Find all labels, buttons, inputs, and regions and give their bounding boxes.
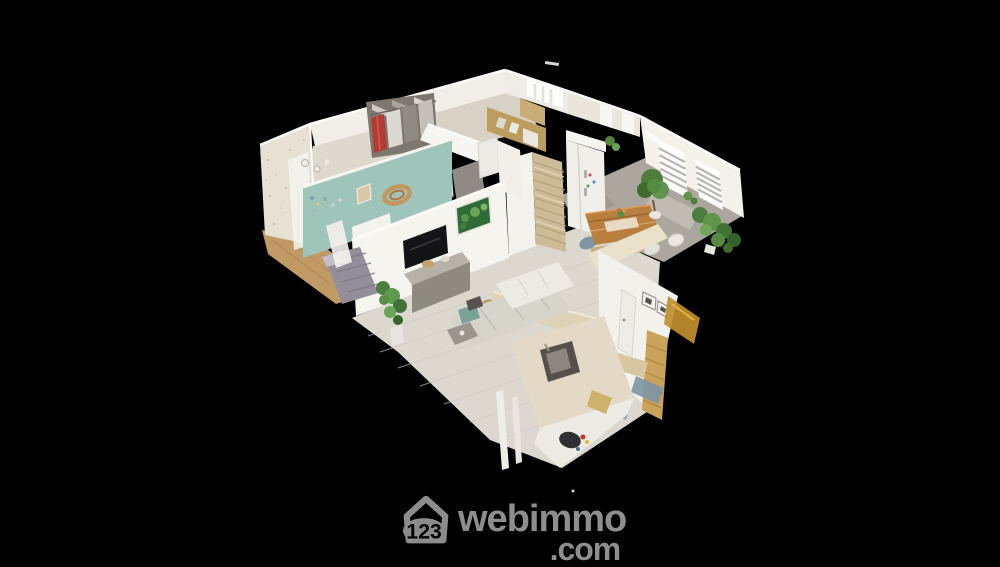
tour-viewer-stage: 123 webimmo .com bbox=[0, 0, 1000, 563]
plant-near-hall bbox=[605, 136, 620, 151]
stone-column bbox=[532, 152, 566, 252]
kitchen-island bbox=[496, 316, 634, 493]
brand-tld: .com bbox=[398, 534, 626, 564]
logo-123webimmo: 123 webimmo .com bbox=[398, 495, 626, 564]
hall-door-2 bbox=[478, 137, 499, 178]
basket bbox=[422, 260, 434, 268]
kitchen-back-wall bbox=[568, 91, 640, 137]
dollhouse-3d-view[interactable] bbox=[0, 0, 1000, 563]
